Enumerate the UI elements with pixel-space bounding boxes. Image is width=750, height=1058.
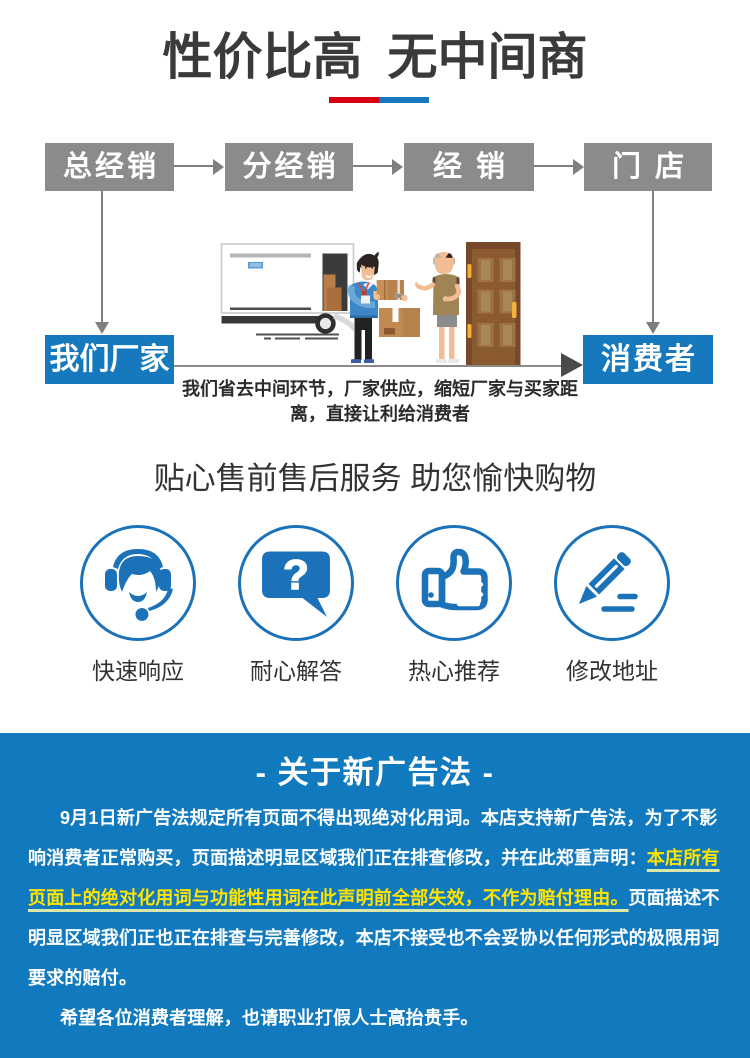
svg-text:?: ? (283, 551, 309, 598)
